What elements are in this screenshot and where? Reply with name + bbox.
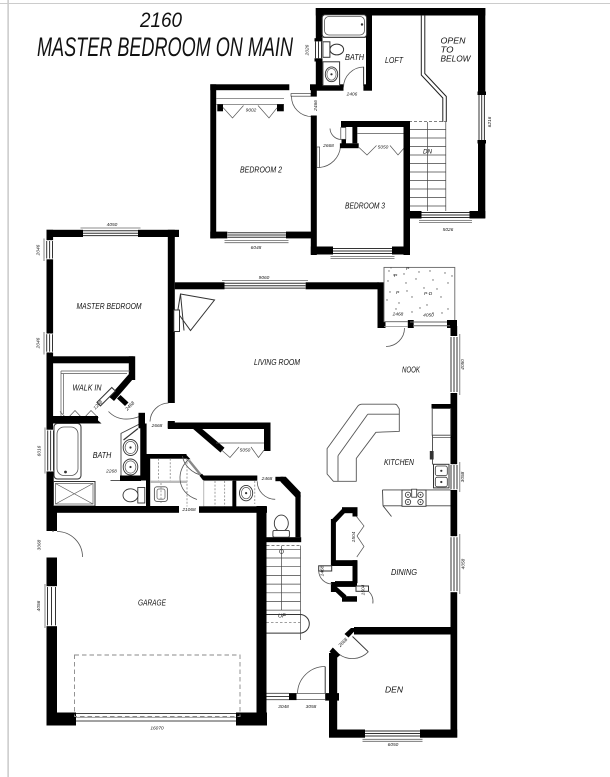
svg-text:1504: 1504	[351, 531, 357, 542]
svg-text:2046: 2046	[36, 244, 42, 256]
svg-text:5050: 5050	[378, 145, 389, 151]
svg-text:3068: 3068	[37, 539, 43, 550]
svg-text:BATH: BATH	[345, 52, 365, 62]
svg-text:NOOK: NOOK	[402, 365, 420, 375]
svg-text:P·D: P·D	[424, 291, 433, 297]
svg-text:BATH: BATH	[93, 450, 112, 460]
svg-text:WALK IN: WALK IN	[73, 383, 103, 393]
svg-text:3058: 3058	[460, 471, 466, 482]
svg-text:4058: 4058	[461, 558, 467, 569]
svg-text:2468: 2468	[261, 476, 273, 482]
svg-text:DEN: DEN	[385, 685, 404, 695]
svg-text:2406: 2406	[346, 92, 358, 98]
svg-text:KITCHEN: KITCHEN	[384, 457, 415, 467]
svg-text:2468: 2468	[392, 312, 404, 318]
svg-text:MASTER BEDROOM ON MAIN: MASTER BEDROOM ON MAIN	[37, 32, 293, 62]
svg-text:1504: 1504	[361, 584, 367, 595]
svg-text:6048: 6048	[251, 245, 262, 251]
svg-text:2668: 2668	[322, 143, 334, 149]
svg-text:MASTER BEDROOM: MASTER BEDROOM	[77, 301, 143, 311]
svg-text:9060: 9060	[259, 275, 270, 281]
svg-text:6016: 6016	[37, 445, 43, 456]
svg-text:BEDROOM 3: BEDROOM 3	[345, 201, 385, 211]
svg-text:BELOW: BELOW	[441, 54, 472, 64]
svg-text:5026: 5026	[443, 227, 454, 233]
svg-text:5050: 5050	[240, 448, 251, 454]
svg-text:LOFT: LOFT	[385, 55, 404, 65]
svg-text:BEDROOM 2: BEDROOM 2	[240, 165, 282, 175]
svg-text:16070: 16070	[150, 726, 164, 732]
svg-text:2026: 2026	[305, 44, 311, 56]
svg-text:2160: 2160	[139, 9, 182, 32]
svg-text:6216: 6216	[487, 116, 493, 127]
svg-text:LIVING ROOM: LIVING ROOM	[254, 357, 301, 367]
svg-text:2466: 2466	[313, 100, 319, 112]
svg-text:DINING: DINING	[391, 567, 417, 577]
svg-text:9002: 9002	[246, 108, 257, 114]
svg-text:DN: DN	[423, 150, 433, 156]
svg-text:21068: 21068	[181, 507, 196, 513]
svg-text:2668: 2668	[151, 423, 163, 429]
svg-text:2046: 2046	[36, 337, 42, 349]
svg-text:GARAGE: GARAGE	[138, 598, 166, 608]
svg-text:1468: 1468	[320, 565, 326, 576]
svg-text:3058: 3058	[306, 704, 317, 710]
svg-text:2268: 2268	[105, 469, 117, 475]
svg-text:3048: 3048	[278, 704, 289, 710]
svg-text:4050: 4050	[107, 222, 118, 228]
svg-text:4050: 4050	[460, 359, 466, 370]
svg-text:4056: 4056	[36, 600, 42, 611]
svg-text:6050: 6050	[388, 742, 399, 748]
